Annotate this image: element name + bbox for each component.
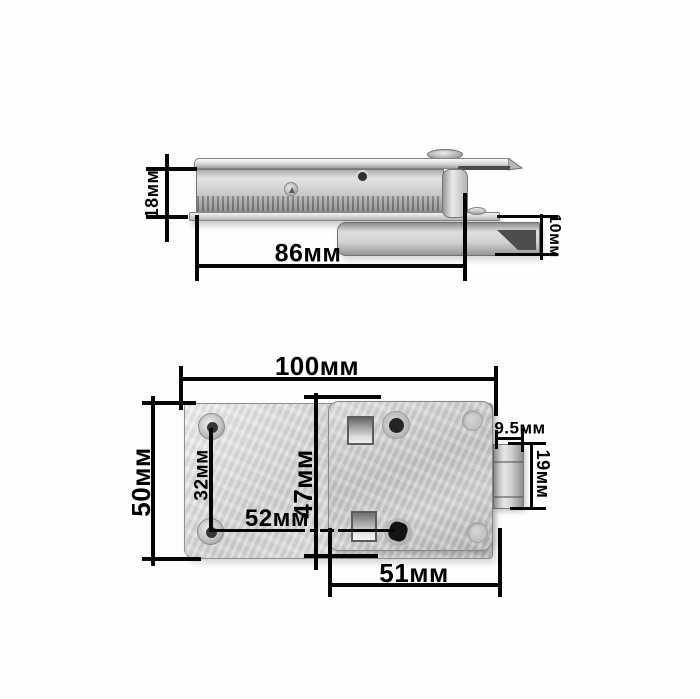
dim-50-tick-top: [142, 401, 196, 405]
plan-screw-hole-top-center: [389, 418, 404, 433]
dim-100-label: 100мм: [275, 353, 359, 379]
dim-86-label: 86мм: [275, 242, 342, 267]
dim-47-tick-bottom: [304, 554, 378, 558]
plan-screw-hole-top: [382, 411, 410, 439]
plan-square-hole-top: [347, 416, 374, 445]
dim-50-tick-bottom: [142, 557, 201, 561]
side-body: [196, 169, 444, 213]
side-body-mottle: [197, 196, 443, 211]
plan-shallow-circle-bottom: [467, 522, 488, 543]
plan-shallow-circle-top: [462, 410, 483, 431]
plan-latch-bolt-groove2: [494, 496, 523, 498]
plan-screw-bottom: [384, 518, 412, 546]
side-latch-wedge: [494, 226, 540, 254]
dim-19-label: 19мм: [534, 450, 552, 499]
side-flange-tip: [508, 158, 524, 171]
dim-51-tick-right: [498, 528, 502, 597]
dim-52-dot: [310, 529, 315, 532]
dim-95-label: 9.5мм: [494, 420, 545, 437]
dim-86-tick-left: [195, 215, 199, 281]
dim-100-tick-right: [494, 366, 498, 416]
dim-86-tick-right: [463, 193, 467, 281]
plan-latch-bolt: [493, 444, 524, 509]
dim-19-tick-bottom: [510, 507, 546, 510]
side-screw-bump: [468, 207, 486, 215]
dim-47-tick-top: [304, 395, 381, 399]
diagram-canvas: 18мм 86мм 10мм: [0, 0, 700, 699]
dim-50-label: 50мм: [128, 447, 154, 516]
side-rivet-hole: [284, 182, 298, 196]
dim-18-label: 18мм: [143, 170, 161, 219]
dim-10-label: 10мм: [546, 214, 562, 257]
plan-square-hole-bottom: [351, 511, 377, 542]
dim-51-tick-left: [328, 528, 332, 597]
side-flange-shadow: [457, 166, 510, 170]
side-round-hole: [356, 170, 369, 183]
plan-latch-bolt-groove1: [494, 461, 523, 463]
dim-52-label: 52мм: [245, 507, 309, 531]
dim-51-label: 51мм: [379, 560, 448, 586]
dim-32-label: 32мм: [193, 449, 212, 500]
dim-19-tick-top: [508, 442, 546, 445]
side-rivet-pin: [289, 187, 295, 193]
dim-52-line-b: [338, 529, 395, 532]
